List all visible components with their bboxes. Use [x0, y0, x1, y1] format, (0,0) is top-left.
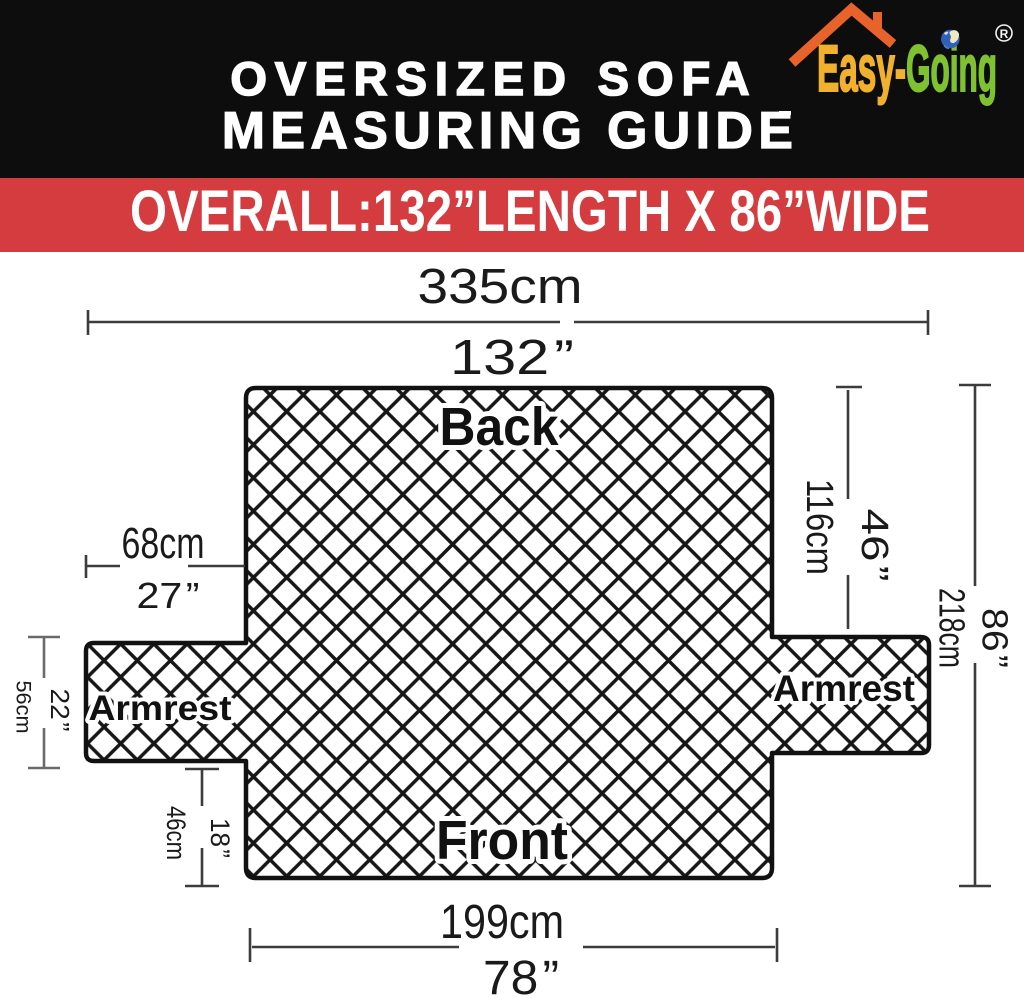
- svg-text:Easy-: Easy-: [817, 31, 906, 105]
- svg-text:335cm: 335cm: [418, 260, 583, 314]
- svg-text:78 ”: 78 ”: [483, 952, 559, 998]
- svg-text:46cm: 46cm: [161, 806, 191, 860]
- svg-text:Back: Back: [440, 397, 560, 457]
- svg-text:116cm: 116cm: [798, 479, 840, 575]
- svg-text:18 ”: 18 ”: [205, 818, 235, 858]
- svg-text:OVERSIZED SOFA: OVERSIZED SOFA: [230, 52, 757, 105]
- svg-text:86 ”: 86 ”: [975, 608, 1016, 668]
- svg-text:46 ”: 46 ”: [853, 509, 895, 582]
- svg-text:22 ”: 22 ”: [45, 689, 75, 732]
- svg-text:R: R: [1000, 27, 1009, 41]
- svg-text:199cm: 199cm: [440, 896, 564, 949]
- svg-text:OVERALL:132”LENGTH X 86”WIDE: OVERALL:132”LENGTH X 86”WIDE: [130, 179, 930, 244]
- svg-text:56cm: 56cm: [12, 681, 35, 734]
- svg-text:218cm: 218cm: [932, 588, 973, 668]
- svg-text:Armrest: Armrest: [89, 689, 232, 728]
- svg-text:68cm: 68cm: [122, 519, 205, 568]
- svg-text:Front: Front: [436, 809, 568, 871]
- svg-text:27 ”: 27 ”: [137, 575, 200, 616]
- svg-text:Armrest: Armrest: [773, 668, 915, 709]
- svg-text:MEASURING GUIDE: MEASURING GUIDE: [222, 102, 798, 160]
- svg-text:132 ”: 132 ”: [450, 331, 574, 385]
